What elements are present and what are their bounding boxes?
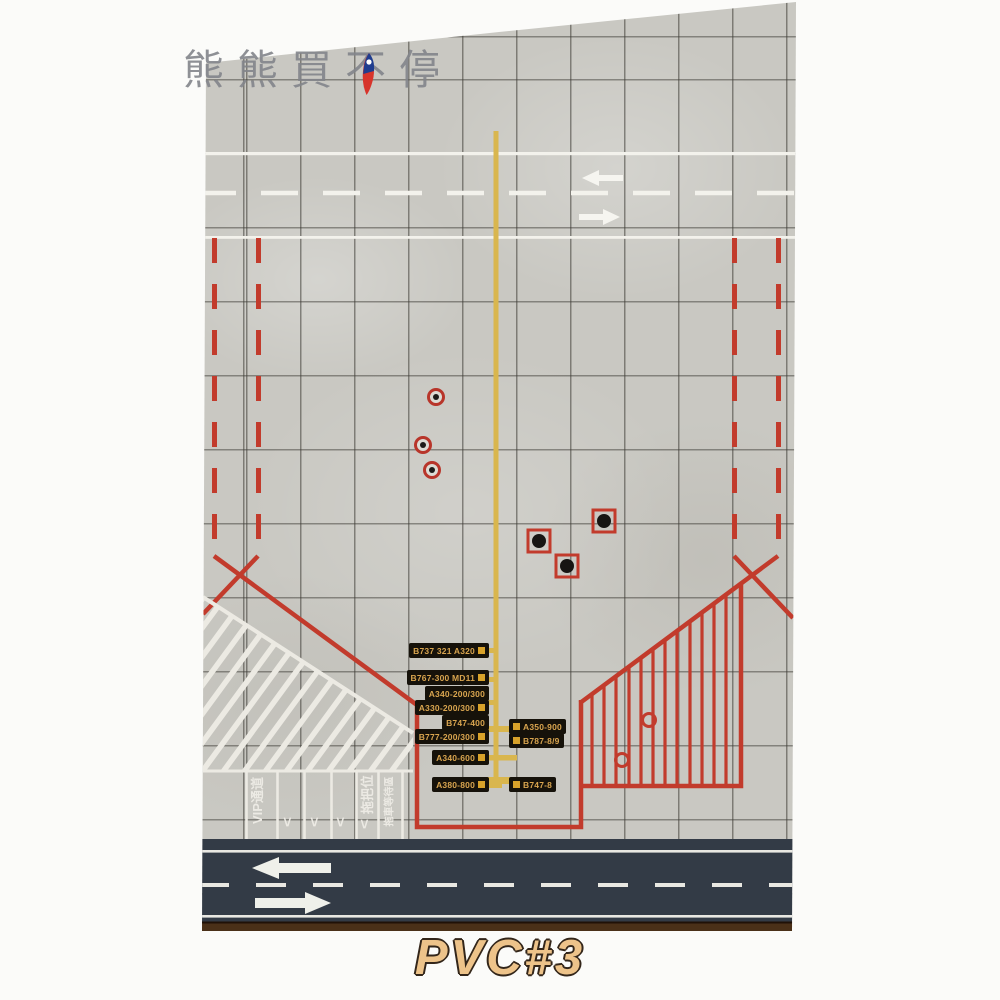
stand-label-text: A380-800 (436, 780, 475, 790)
stand-label-text: B787-8/9 (523, 736, 560, 746)
gold-square-icon (478, 704, 485, 711)
service-road (199, 839, 796, 931)
stand-label-text: B747-400 (446, 718, 485, 728)
stand-label: B767-300 MD11 (407, 670, 490, 685)
stand-label: A340-600 (432, 750, 489, 765)
stand-label: B777-200/300 (415, 729, 489, 744)
stand-label: B737 321 A320 (409, 643, 489, 658)
gold-square-icon (478, 647, 485, 654)
dot-square-markers (528, 510, 615, 577)
stand-label: B747-8 (509, 777, 556, 792)
gold-square-icon (513, 737, 520, 744)
apron-mat-photo: B737 321 A320 B767-300 MD11 A340-200/300… (199, 0, 796, 931)
lane-label-tow-wait: 拖車等待區 (381, 777, 396, 827)
lane-chevron-icon: < (356, 819, 372, 829)
lane-label-vip: VIP通道 (247, 777, 266, 824)
stand-label: A380-800 (432, 777, 489, 792)
lane-label-tow-bar: 拖把位 (357, 775, 376, 814)
stand-label-text: B777-200/300 (419, 732, 475, 742)
gold-square-icon (478, 733, 485, 740)
gold-square-icon (478, 674, 485, 681)
stand-label-text: B737 321 A320 (413, 646, 475, 656)
stand-label-text: B767-300 MD11 (411, 673, 476, 683)
stand-label: B787-8/9 (509, 733, 564, 748)
taxiway-left-arrow-icon (582, 170, 623, 186)
stand-label: A330-200/300 (415, 700, 489, 715)
lane-chevron-icon: < (279, 817, 295, 827)
taxiway-right-arrow-icon (579, 209, 620, 225)
stand-label: A340-200/300 (425, 686, 489, 701)
gold-square-icon (478, 781, 485, 788)
product-photo: 熊熊買不停 (0, 0, 1000, 1000)
stand-label-text: A340-600 (436, 753, 475, 763)
lane-chevron-icon: < (306, 817, 322, 827)
product-label: PVC#3 (0, 930, 1000, 986)
gold-square-icon (513, 781, 520, 788)
gold-square-icon (478, 754, 485, 761)
watermark-text: 熊熊買不停 (183, 36, 453, 96)
lane-chevron-icon: < (332, 817, 348, 827)
taiwan-flag-icon (361, 52, 377, 101)
stand-label: A350-900 (509, 719, 566, 734)
stand-label-text: B747-8 (523, 780, 552, 790)
stand-label: B747-400 (442, 715, 489, 730)
bullseye-markers (416, 390, 444, 478)
red-hatched-zone (592, 556, 726, 790)
stand-label-text: A330-200/300 (419, 703, 475, 713)
gold-square-icon (513, 723, 520, 730)
apron-markings-graphic (199, 0, 796, 931)
stand-label-text: A340-200/300 (429, 689, 485, 699)
stand-label-text: A350-900 (523, 722, 562, 732)
